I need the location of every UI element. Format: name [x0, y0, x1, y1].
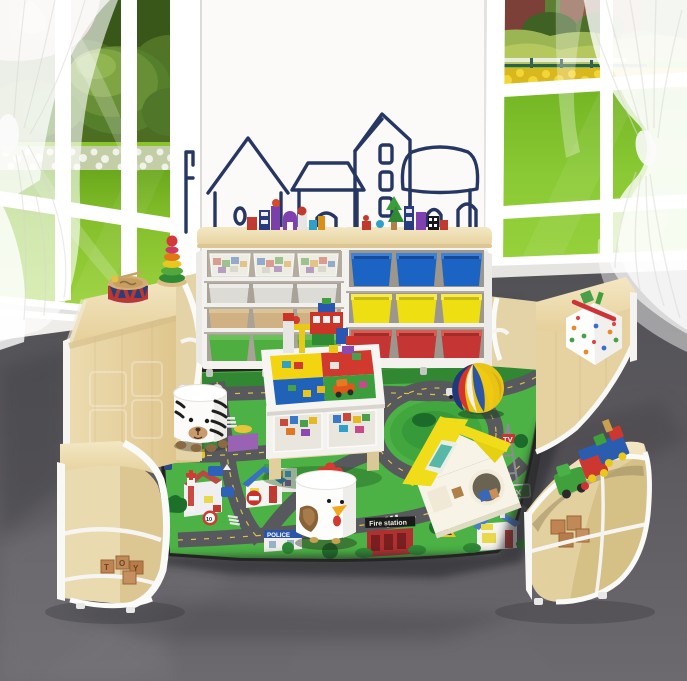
svg-text:Y: Y: [133, 564, 139, 573]
svg-text:10: 10: [206, 517, 212, 523]
svg-text:T: T: [104, 563, 109, 572]
svg-text:POLICE: POLICE: [267, 532, 290, 539]
svg-text:Fire station: Fire station: [369, 520, 407, 528]
svg-text:O: O: [119, 559, 125, 568]
